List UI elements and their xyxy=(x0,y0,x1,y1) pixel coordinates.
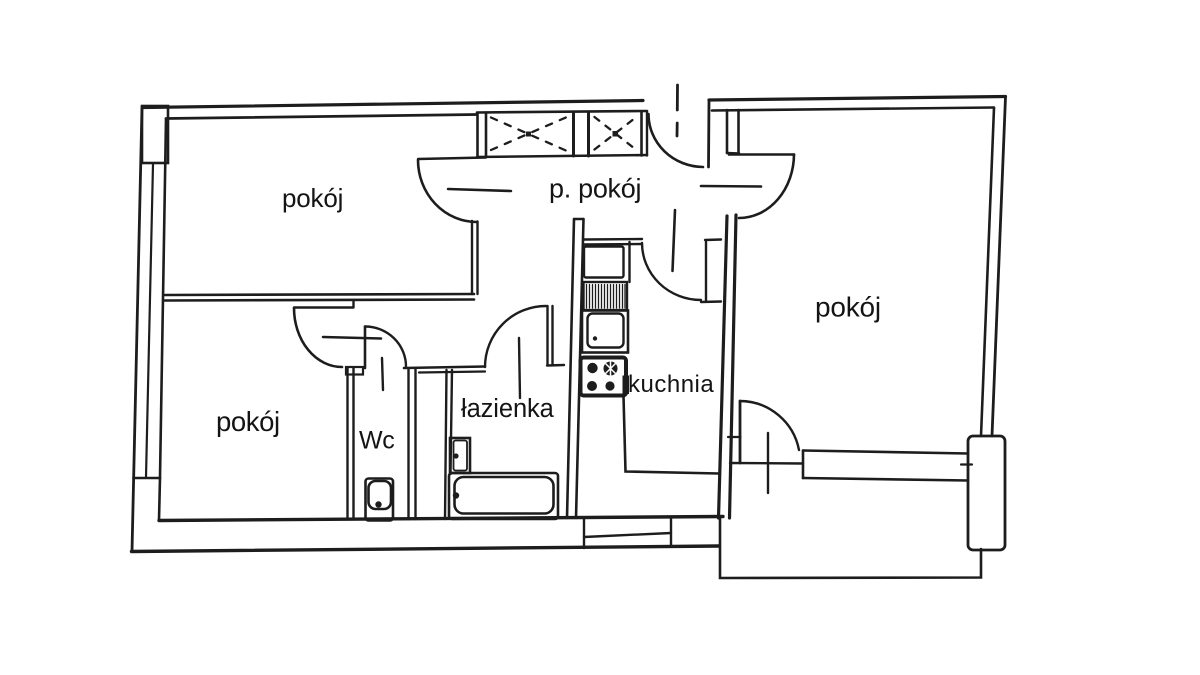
svg-text:kuchnia: kuchnia xyxy=(628,371,714,398)
svg-text:Wc: Wc xyxy=(359,427,395,455)
svg-text:p. pokój: p. pokój xyxy=(549,174,641,204)
svg-text:łazienka: łazienka xyxy=(461,395,555,423)
svg-text:pokój: pokój xyxy=(815,292,881,323)
svg-text:pokój: pokój xyxy=(282,183,343,213)
svg-text:pokój: pokój xyxy=(216,406,280,437)
